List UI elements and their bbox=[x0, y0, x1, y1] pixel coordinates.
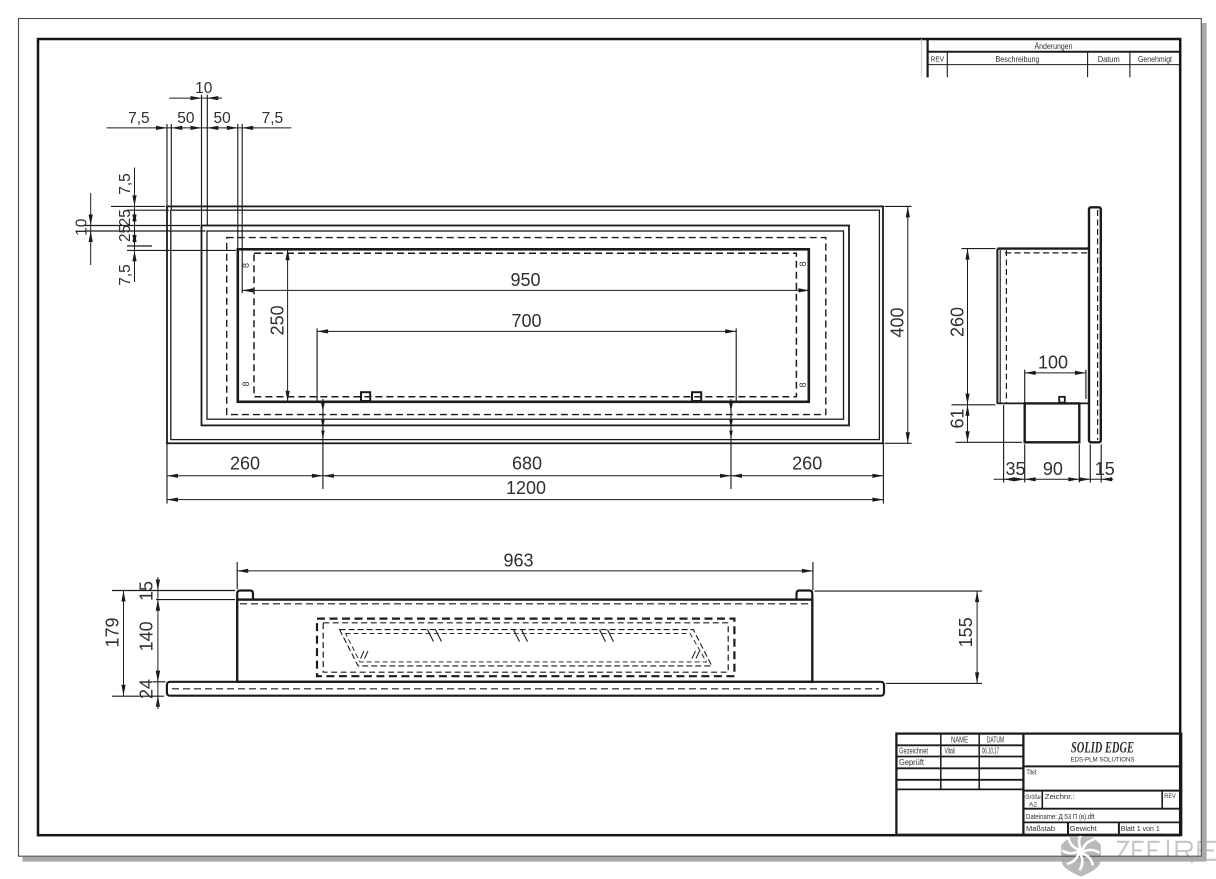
svg-text:Maßstab: Maßstab bbox=[1026, 826, 1055, 833]
svg-text:15: 15 bbox=[1095, 459, 1115, 479]
svg-text:8: 8 bbox=[241, 381, 251, 386]
svg-text:50: 50 bbox=[213, 110, 231, 127]
svg-text:8: 8 bbox=[798, 382, 808, 387]
svg-text:Datum: Datum bbox=[1098, 55, 1120, 64]
svg-text:260: 260 bbox=[947, 307, 967, 337]
svg-text:8: 8 bbox=[798, 261, 808, 266]
svg-text:7,5: 7,5 bbox=[117, 264, 134, 286]
svg-text:260: 260 bbox=[792, 453, 822, 473]
svg-text:25: 25 bbox=[117, 225, 134, 242]
svg-text:179: 179 bbox=[102, 617, 122, 647]
svg-text:7,5: 7,5 bbox=[128, 110, 150, 127]
svg-text:Zeichnr.:: Zeichnr.: bbox=[1045, 794, 1075, 801]
svg-text:1200: 1200 bbox=[506, 478, 546, 498]
svg-text:700: 700 bbox=[511, 311, 541, 331]
svg-text:Gezeichnet: Gezeichnet bbox=[899, 747, 929, 756]
svg-text:50: 50 bbox=[177, 110, 195, 127]
svg-text:90: 90 bbox=[1043, 459, 1063, 479]
svg-text:REV: REV bbox=[931, 55, 945, 64]
svg-text:Änderungen: Änderungen bbox=[1035, 41, 1073, 51]
svg-text:10: 10 bbox=[73, 218, 90, 236]
svg-text:Genehmigt: Genehmigt bbox=[1138, 55, 1173, 64]
svg-text:Beschreibung: Beschreibung bbox=[996, 55, 1040, 64]
svg-text:963: 963 bbox=[503, 551, 533, 571]
svg-text:Blatt 1 von 1: Blatt 1 von 1 bbox=[1121, 826, 1160, 833]
svg-text:15: 15 bbox=[137, 581, 157, 601]
svg-text:400: 400 bbox=[888, 307, 908, 337]
svg-text:Vitali: Vitali bbox=[945, 747, 956, 756]
svg-text:680: 680 bbox=[512, 453, 542, 473]
svg-text:Titel:: Titel: bbox=[1027, 768, 1038, 777]
svg-text:REV: REV bbox=[1164, 793, 1176, 800]
svg-text:25: 25 bbox=[117, 209, 134, 226]
svg-text:Dateiname: Д 53 П (в).dft: Dateiname: Д 53 П (в).dft bbox=[1026, 814, 1095, 821]
svg-text:260: 260 bbox=[230, 453, 260, 473]
svg-text:DATUM: DATUM bbox=[987, 736, 1005, 745]
svg-text:61: 61 bbox=[947, 408, 967, 428]
svg-text:35: 35 bbox=[1005, 459, 1025, 479]
svg-text:24: 24 bbox=[137, 679, 157, 699]
svg-text:155: 155 bbox=[956, 617, 976, 647]
svg-text:950: 950 bbox=[510, 270, 540, 290]
svg-text:NAME: NAME bbox=[951, 736, 968, 745]
svg-text:250: 250 bbox=[267, 305, 287, 335]
svg-text:140: 140 bbox=[137, 621, 157, 651]
svg-text:Gewicht: Gewicht bbox=[1070, 826, 1097, 833]
svg-text:7,5: 7,5 bbox=[117, 173, 134, 195]
svg-text:7,5: 7,5 bbox=[262, 110, 284, 127]
svg-text:SOLID EDGE: SOLID EDGE bbox=[1071, 740, 1134, 757]
svg-text:EDS-PLM SOLUTIONS: EDS-PLM SOLUTIONS bbox=[1071, 756, 1136, 763]
svg-text:Größe: Größe bbox=[1025, 794, 1041, 801]
svg-text:06.10.17: 06.10.17 bbox=[982, 747, 999, 756]
svg-text:10: 10 bbox=[195, 80, 213, 97]
svg-text:100: 100 bbox=[1038, 353, 1068, 373]
svg-text:A2: A2 bbox=[1029, 801, 1037, 808]
svg-text:Geprüft: Geprüft bbox=[899, 758, 925, 767]
